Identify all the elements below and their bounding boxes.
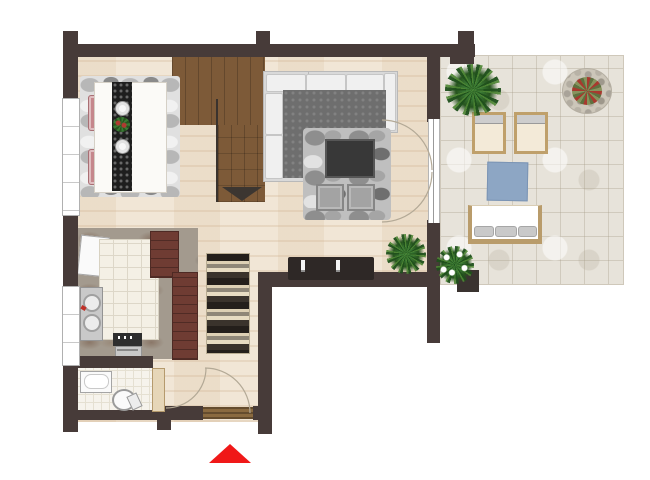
wall-hall-right xyxy=(258,272,272,434)
plate xyxy=(115,139,130,154)
bench-cushion xyxy=(518,226,537,237)
wall-right-upper xyxy=(427,44,440,122)
round-flower-planter xyxy=(562,68,612,114)
entrance-marker-icon xyxy=(209,444,251,463)
staircase-down-arrow-icon xyxy=(222,187,262,201)
sun-lounger xyxy=(514,112,548,154)
bathtub-inner xyxy=(84,374,109,389)
pouf xyxy=(316,184,344,211)
sofa-side-cushion xyxy=(265,135,283,179)
wall-bottom-stub xyxy=(157,420,171,430)
table-centerpiece-plant xyxy=(113,117,130,132)
indoor-plant xyxy=(386,234,426,274)
wall-pillar xyxy=(458,31,474,45)
stove-top xyxy=(113,333,142,346)
bathroom-door-leaf xyxy=(152,368,165,412)
wall-top xyxy=(63,44,475,57)
sink-basin xyxy=(83,294,101,312)
lounger-pillow xyxy=(517,115,545,124)
terrace-bench xyxy=(468,205,542,244)
sofa-side-cushion xyxy=(265,93,283,135)
planter-flowers xyxy=(572,77,602,105)
entry-doormat xyxy=(203,407,253,419)
oven-handle xyxy=(117,349,138,351)
window xyxy=(62,286,80,366)
terrace-sliding-door xyxy=(428,119,440,223)
white-flower-plant xyxy=(436,246,474,284)
candle xyxy=(336,260,340,272)
sun-lounger xyxy=(472,112,506,154)
floor-plan xyxy=(0,0,650,480)
plate xyxy=(115,101,130,116)
pouf xyxy=(347,184,375,211)
wavy-runner-rug xyxy=(206,253,250,354)
staircase-upper xyxy=(172,57,265,125)
window xyxy=(62,98,80,216)
bench-cushion xyxy=(474,226,494,237)
staircase-divider xyxy=(216,99,218,202)
stove-knobs xyxy=(118,336,136,339)
terrace-palm-plant xyxy=(445,64,501,116)
wall-pillar xyxy=(63,31,78,45)
table-runner xyxy=(112,82,132,191)
wall-pillar xyxy=(256,31,270,45)
lounger-pillow xyxy=(475,115,503,124)
wall-terrace-step xyxy=(450,44,474,64)
kitchen-cabinet-right xyxy=(172,272,198,360)
kitchen-cabinet-top xyxy=(150,231,179,278)
coffee-table xyxy=(325,139,375,178)
candle xyxy=(301,260,305,272)
bench-cushion xyxy=(495,226,517,237)
blue-mat xyxy=(487,162,529,202)
sink-basin xyxy=(83,314,101,332)
wall-right-lower xyxy=(427,220,440,343)
